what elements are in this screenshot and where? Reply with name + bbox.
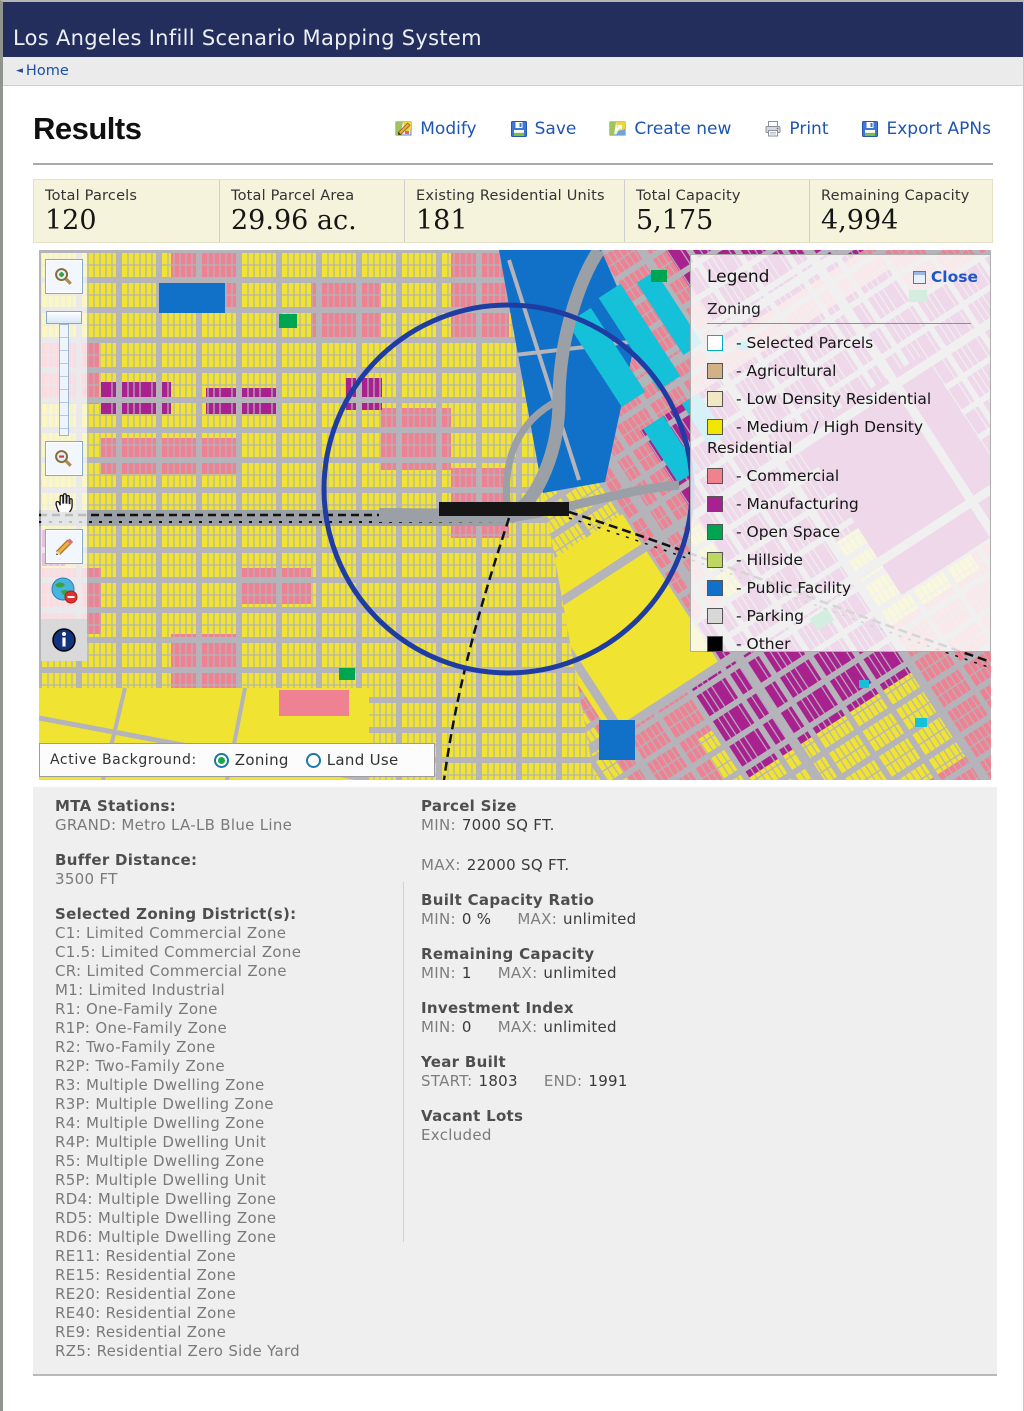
pencil-icon — [53, 536, 75, 558]
zoom-out-button[interactable] — [45, 441, 83, 476]
zoning-district-item: RE9: Residential Zone — [55, 1323, 400, 1342]
details-right-column: Parcel Size MIN:7000 SQ FT. MAX:22000 SQ… — [421, 797, 811, 1145]
globe-icon — [49, 575, 79, 605]
investment-index-section: Investment Index MIN:0MAX:unlimited — [421, 999, 811, 1037]
zoning-district-item: R1: One-Family Zone — [55, 1000, 400, 1019]
legend-item: - Low Density Residential — [707, 389, 978, 410]
main-content: Results Modify Save Create new Print — [3, 106, 1023, 1376]
floppy-disk-icon — [861, 120, 879, 138]
details-left-column: MTA Stations: GRAND: Metro LA-LB Blue Li… — [55, 797, 400, 1361]
home-link[interactable]: Home — [26, 63, 69, 79]
zoning-district-item: RE11: Residential Zone — [55, 1247, 400, 1266]
built-capacity-ratio-section: Built Capacity Ratio MIN:0 %MAX:unlimite… — [421, 891, 811, 929]
legend-swatch — [707, 419, 723, 435]
legend-swatch — [707, 335, 723, 351]
legend-items: - Selected Parcels - Agricultural - Low … — [707, 333, 978, 655]
zoning-district-item: RZ5: Residential Zero Side Yard — [55, 1342, 400, 1361]
legend-item-label: - Hillside — [736, 551, 803, 569]
radio-selected-icon — [214, 753, 229, 768]
buffer-distance-section: Buffer Distance: 3500 FT — [55, 851, 400, 889]
mta-stations-section: MTA Stations: GRAND: Metro LA-LB Blue Li… — [55, 797, 400, 835]
legend-swatch — [707, 468, 723, 484]
zoning-district-item: R1P: One-Family Zone — [55, 1019, 400, 1038]
legend-swatch — [707, 552, 723, 568]
modify-button[interactable]: Modify — [395, 119, 476, 139]
summary-stats-bar: Total Parcels 120 Total Parcel Area 29.9… — [33, 179, 993, 243]
zoning-district-item: R3P: Multiple Dwelling Zone — [55, 1095, 400, 1114]
radio-option-land-use[interactable]: Land Use — [306, 751, 399, 769]
map-toolbar — [41, 253, 87, 661]
legend-item: - Parking — [707, 606, 978, 627]
legend-item-label: - Commercial — [736, 467, 839, 485]
hand-icon — [51, 489, 77, 515]
floppy-disk-icon — [510, 120, 528, 138]
legend-swatch — [707, 391, 723, 407]
zoning-district-item: R3: Multiple Dwelling Zone — [55, 1076, 400, 1095]
radio-option-zoning[interactable]: Zoning — [214, 751, 289, 769]
zoning-district-item: M1: Limited Industrial — [55, 981, 400, 1000]
zoning-district-item: RE40: Residential Zone — [55, 1304, 400, 1323]
zoning-district-item: R2P: Two-Family Zone — [55, 1057, 400, 1076]
zoom-in-icon — [53, 266, 75, 288]
zoning-district-item: RD5: Multiple Dwelling Zone — [55, 1209, 400, 1228]
legend-section-title: Zoning — [707, 300, 971, 324]
close-panel-icon — [913, 271, 926, 284]
legend-item-label: - Low Density Residential — [736, 390, 931, 408]
zoom-out-icon — [53, 448, 75, 470]
stat-total-capacity: Total Capacity 5,175 — [624, 180, 809, 242]
zoom-slider-track[interactable] — [59, 324, 69, 436]
printer-icon — [764, 120, 782, 138]
active-background-label: Active Background: — [50, 752, 197, 768]
legend-item: - Manufacturing — [707, 494, 978, 515]
vacant-lots-section: Vacant Lots Excluded — [421, 1107, 811, 1145]
legend-swatch — [707, 580, 723, 596]
map-pencil-icon — [395, 120, 413, 138]
scenario-details-panel: MTA Stations: GRAND: Metro LA-LB Blue Li… — [33, 787, 997, 1376]
legend-swatch — [707, 363, 723, 379]
legend-item-label: - Parking — [736, 607, 804, 625]
zoom-in-button[interactable] — [45, 259, 83, 294]
legend-item: - Open Space — [707, 522, 978, 543]
full-extent-button[interactable] — [49, 575, 79, 609]
zoom-slider-handle[interactable] — [46, 311, 82, 324]
legend-item: - Agricultural — [707, 361, 978, 382]
legend-swatch — [707, 608, 723, 624]
back-arrow-icon: ◄ — [16, 66, 23, 76]
zoning-district-item: C1: Limited Commercial Zone — [55, 924, 400, 943]
zoning-district-list: C1: Limited Commercial ZoneC1.5: Limited… — [55, 924, 400, 1361]
year-built-section: Year Built START:1803END:1991 — [421, 1053, 811, 1091]
zoning-district-item: R4: Multiple Dwelling Zone — [55, 1114, 400, 1133]
legend-panel: Legend Close Zoning - Selected Parcels — [690, 254, 991, 652]
create-new-button[interactable]: Create new — [609, 119, 731, 139]
zoning-district-item: RE20: Residential Zone — [55, 1285, 400, 1304]
app-window: Los Angeles Infill Scenario Mapping Syst… — [0, 0, 1024, 1411]
zoning-district-item: C1.5: Limited Commercial Zone — [55, 943, 400, 962]
zoning-district-item: R5P: Multiple Dwelling Unit — [55, 1171, 400, 1190]
info-icon — [51, 627, 77, 653]
zoning-district-item: R4P: Multiple Dwelling Unit — [55, 1133, 400, 1152]
legend-item-label: - Other — [736, 635, 791, 653]
stat-remaining-capacity: Remaining Capacity 4,994 — [809, 180, 992, 242]
legend-item-label: - Medium / High Density Residential — [707, 418, 923, 457]
zoning-district-item: RD4: Multiple Dwelling Zone — [55, 1190, 400, 1209]
remaining-capacity-section: Remaining Capacity MIN:1MAX:unlimited — [421, 945, 811, 983]
legend-swatch — [707, 524, 723, 540]
toolbar-separator — [33, 163, 993, 165]
legend-item: - Public Facility — [707, 578, 978, 599]
zoning-district-item: CR: Limited Commercial Zone — [55, 962, 400, 981]
results-header-row: Results Modify Save Create new Print — [33, 106, 993, 152]
active-background-control: Active Background: Zoning Land Use — [39, 743, 435, 777]
export-apns-button[interactable]: Export APNs — [861, 119, 991, 139]
page-title: Results — [33, 111, 141, 147]
legend-item-label: - Agricultural — [736, 362, 836, 380]
legend-item-label: - Open Space — [736, 523, 840, 541]
legend-item-label: - Manufacturing — [736, 495, 859, 513]
print-button[interactable]: Print — [764, 119, 828, 139]
draw-button[interactable] — [45, 529, 83, 564]
legend-close-button[interactable]: Close — [913, 268, 978, 286]
breadcrumb: ◄ Home — [3, 57, 1023, 86]
legend-item: - Other — [707, 634, 978, 655]
legend-item: - Hillside — [707, 550, 978, 571]
column-divider — [403, 882, 404, 1242]
legend-title: Legend — [707, 267, 769, 287]
app-title-bar: Los Angeles Infill Scenario Mapping Syst… — [3, 2, 1023, 57]
zoning-district-item: R5: Multiple Dwelling Zone — [55, 1152, 400, 1171]
stat-existing-residential-units: Existing Residential Units 181 — [404, 180, 624, 242]
legend-item: - Selected Parcels — [707, 333, 978, 354]
legend-swatch — [707, 636, 723, 652]
legend-swatch — [707, 496, 723, 512]
pan-hand-button[interactable] — [51, 489, 77, 519]
zoning-district-item: R2: Two-Family Zone — [55, 1038, 400, 1057]
legend-item-label: - Selected Parcels — [736, 334, 873, 352]
stat-total-parcels: Total Parcels 120 — [34, 180, 219, 242]
radio-unselected-icon — [306, 753, 321, 768]
legend-item: - Commercial — [707, 466, 978, 487]
legend-item-label: - Public Facility — [736, 579, 851, 597]
map-canvas[interactable]: Legend Close Zoning - Selected Parcels — [39, 250, 991, 780]
zoning-districts-section: Selected Zoning District(s): C1: Limited… — [55, 905, 400, 1361]
stat-total-parcel-area: Total Parcel Area 29.96 ac. — [219, 180, 404, 242]
identify-button[interactable] — [41, 619, 87, 661]
legend-item: - Medium / High Density Residential — [707, 417, 978, 459]
results-toolbar: Modify Save Create new Print Export APNs — [395, 119, 993, 139]
zoning-district-item: RD6: Multiple Dwelling Zone — [55, 1228, 400, 1247]
parcel-size-section: Parcel Size MIN:7000 SQ FT. MAX:22000 SQ… — [421, 797, 811, 875]
zoning-district-item: RE15: Residential Zone — [55, 1266, 400, 1285]
map-icon — [609, 120, 627, 138]
app-title: Los Angeles Infill Scenario Mapping Syst… — [13, 26, 482, 50]
save-button[interactable]: Save — [510, 119, 577, 139]
